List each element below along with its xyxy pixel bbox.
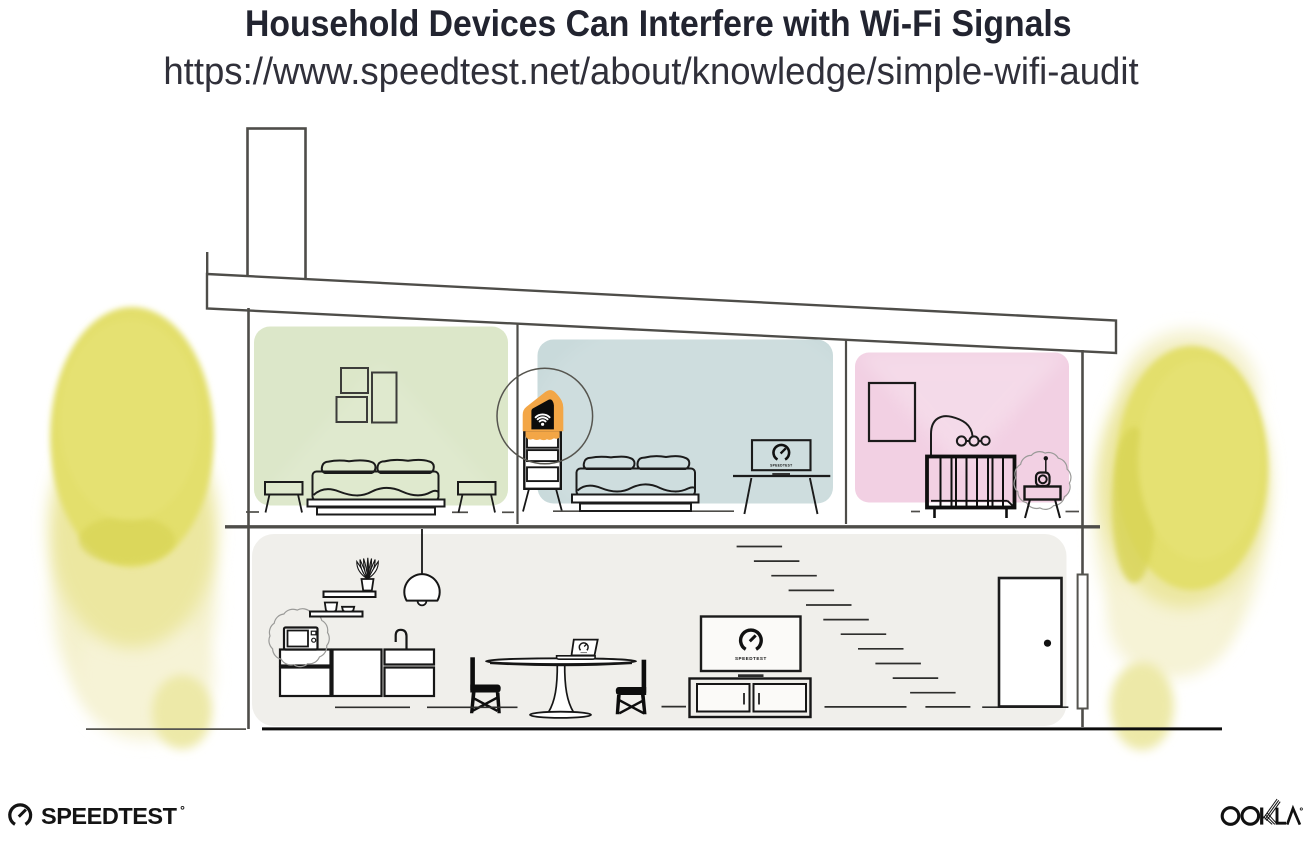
- svg-text:SPEEDTEST: SPEEDTEST: [41, 803, 178, 829]
- svg-text:SPEEDTEST: SPEEDTEST: [770, 464, 792, 468]
- svg-text:SPEEDTEST: SPEEDTEST: [735, 656, 767, 661]
